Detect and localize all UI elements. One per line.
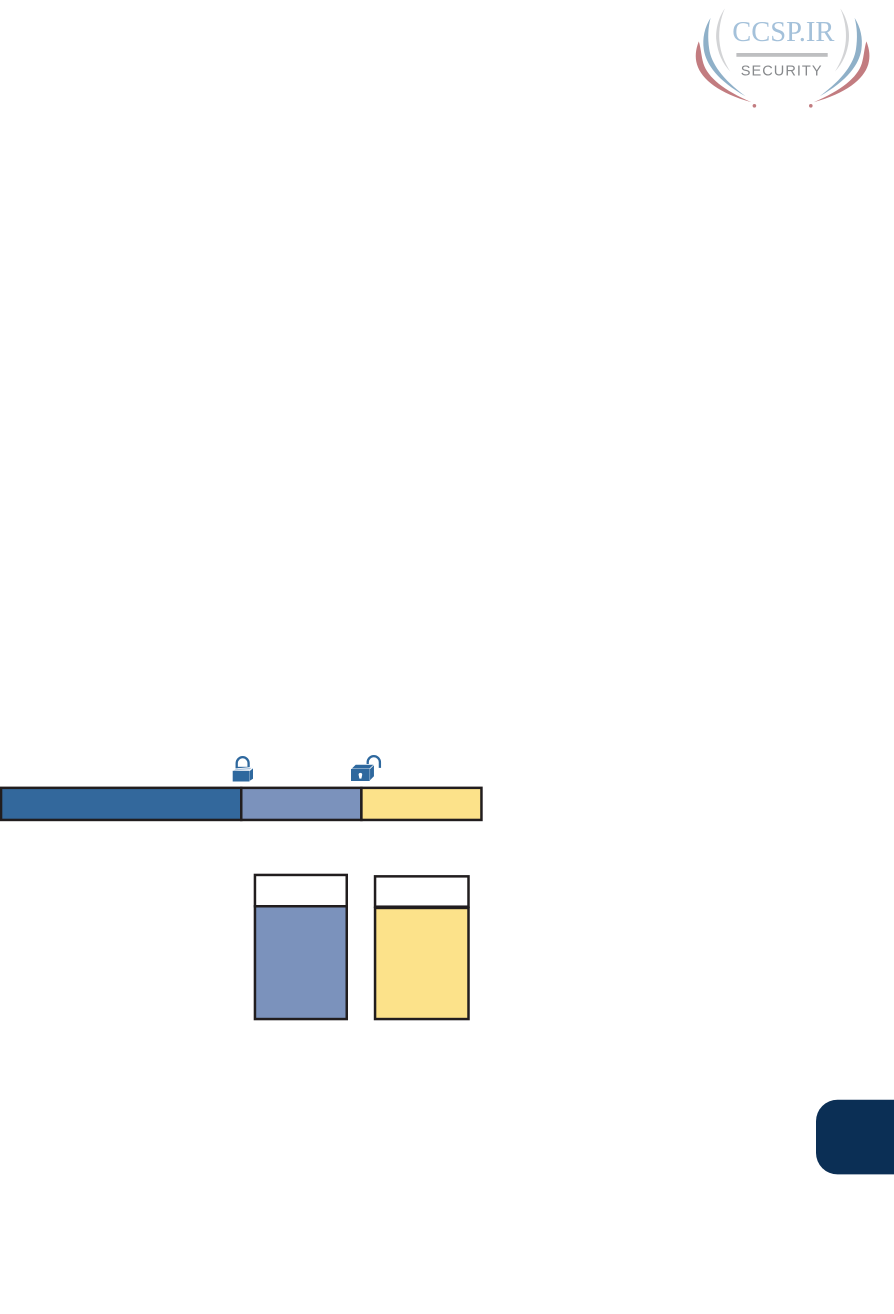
svg-text:CCSP.IR: CCSP.IR	[732, 17, 834, 48]
svg-text:SECURITY: SECURITY	[741, 64, 823, 80]
